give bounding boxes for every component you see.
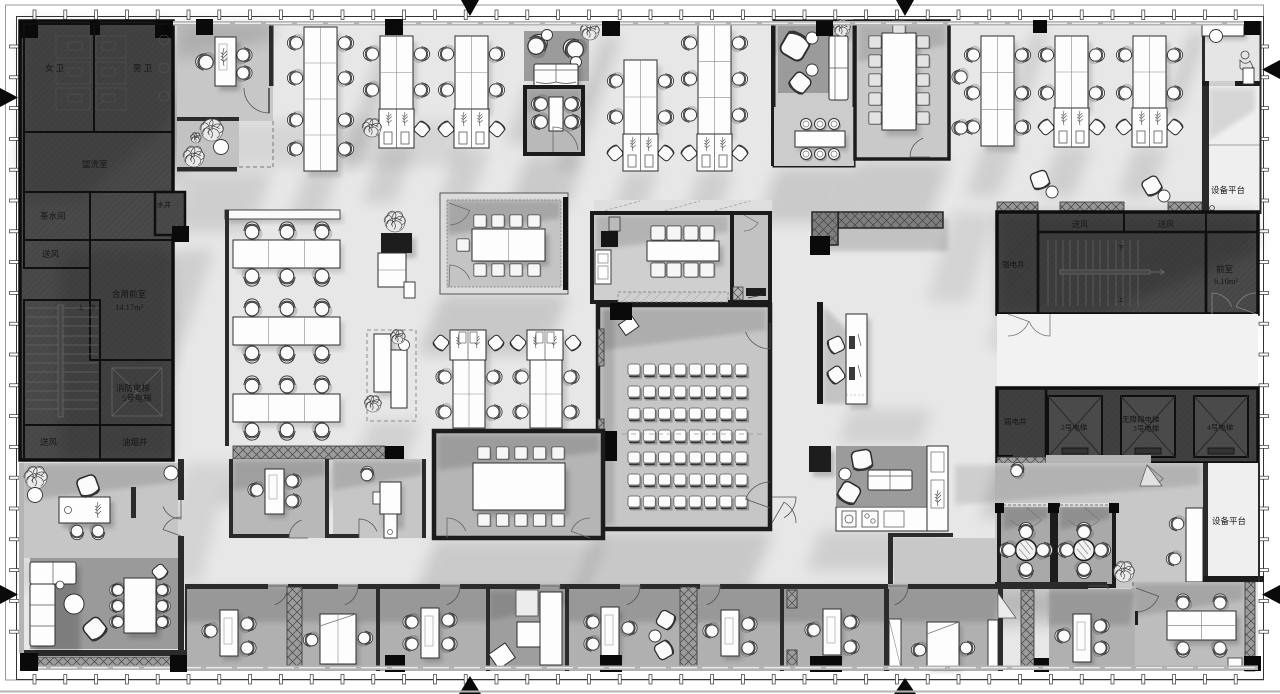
svg-text:设备平台: 设备平台 bbox=[1211, 185, 1245, 195]
svg-text:无障碍电梯: 无障碍电梯 bbox=[1122, 414, 1160, 424]
svg-text:设备平台: 设备平台 bbox=[1212, 516, 1246, 526]
svg-text:茶水间: 茶水间 bbox=[40, 211, 66, 221]
svg-text:下: 下 bbox=[90, 305, 96, 312]
svg-text:下: 下 bbox=[1118, 245, 1124, 252]
svg-text:油烟井: 油烟井 bbox=[122, 437, 148, 447]
svg-text:送风: 送风 bbox=[42, 249, 60, 259]
svg-text:前室: 前室 bbox=[1216, 264, 1234, 274]
svg-text:14.17m²: 14.17m² bbox=[115, 302, 144, 312]
svg-text:6.10m²: 6.10m² bbox=[1214, 276, 1238, 286]
svg-text:弱电井: 弱电井 bbox=[1004, 416, 1027, 426]
svg-text:上: 上 bbox=[78, 304, 84, 312]
svg-text:男 卫: 男 卫 bbox=[133, 63, 153, 73]
svg-text:2号电梯: 2号电梯 bbox=[1061, 422, 1088, 432]
svg-text:女 卫: 女 卫 bbox=[45, 63, 65, 73]
svg-text:4号电梯: 4号电梯 bbox=[1207, 422, 1234, 432]
svg-text:盥洗室: 盥洗室 bbox=[82, 159, 108, 169]
svg-text:上: 上 bbox=[1118, 296, 1124, 304]
svg-text:5号电梯: 5号电梯 bbox=[122, 393, 152, 403]
svg-text:送风: 送风 bbox=[1072, 219, 1088, 229]
svg-text:强电井: 强电井 bbox=[1002, 259, 1025, 269]
svg-text:3号电梯: 3号电梯 bbox=[1133, 423, 1160, 433]
svg-text:水井: 水井 bbox=[157, 200, 171, 209]
svg-text:消防电梯: 消防电梯 bbox=[116, 383, 151, 393]
svg-text:送风: 送风 bbox=[1158, 219, 1174, 229]
svg-text:合用前室: 合用前室 bbox=[112, 289, 147, 299]
svg-text:送风: 送风 bbox=[40, 437, 58, 447]
